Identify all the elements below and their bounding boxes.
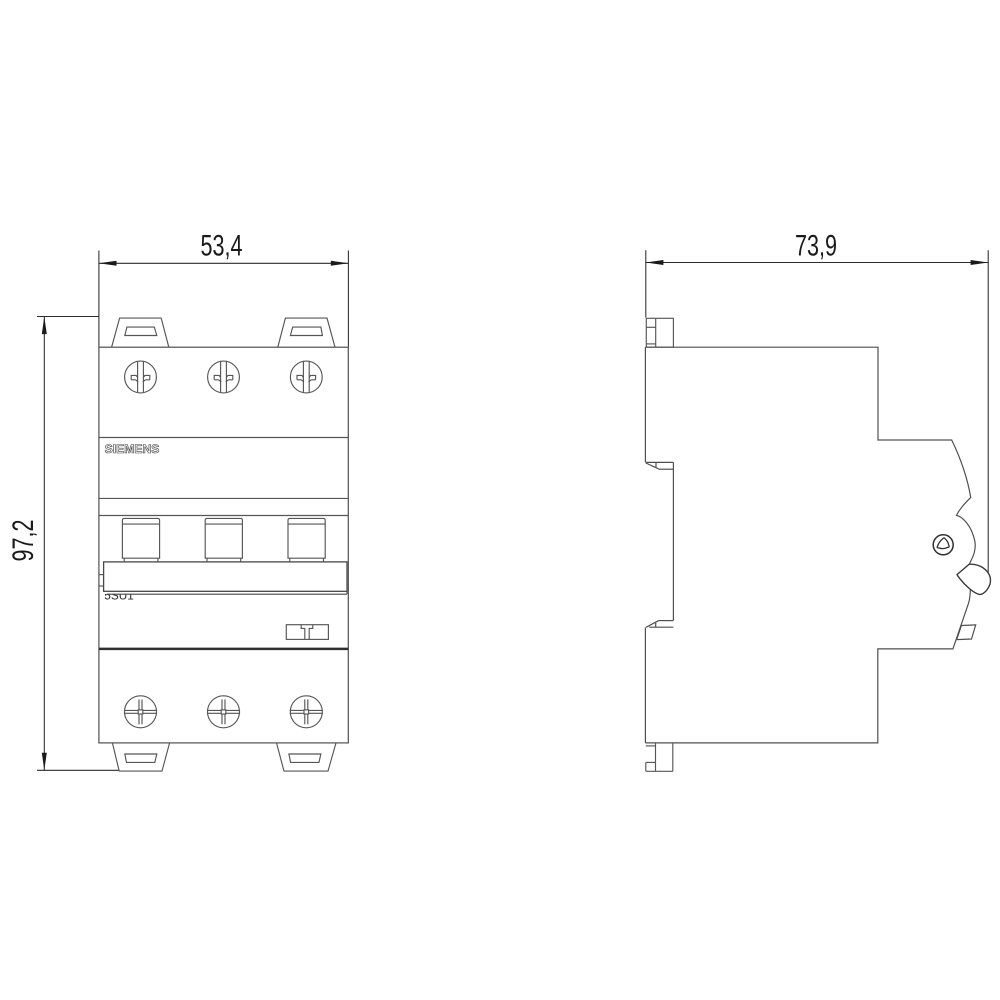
svg-text:53,4: 53,4 <box>200 228 242 262</box>
svg-text:SIEMENS: SIEMENS <box>105 442 160 456</box>
svg-text:97,2: 97,2 <box>6 519 40 561</box>
svg-text:73,9: 73,9 <box>795 228 837 262</box>
